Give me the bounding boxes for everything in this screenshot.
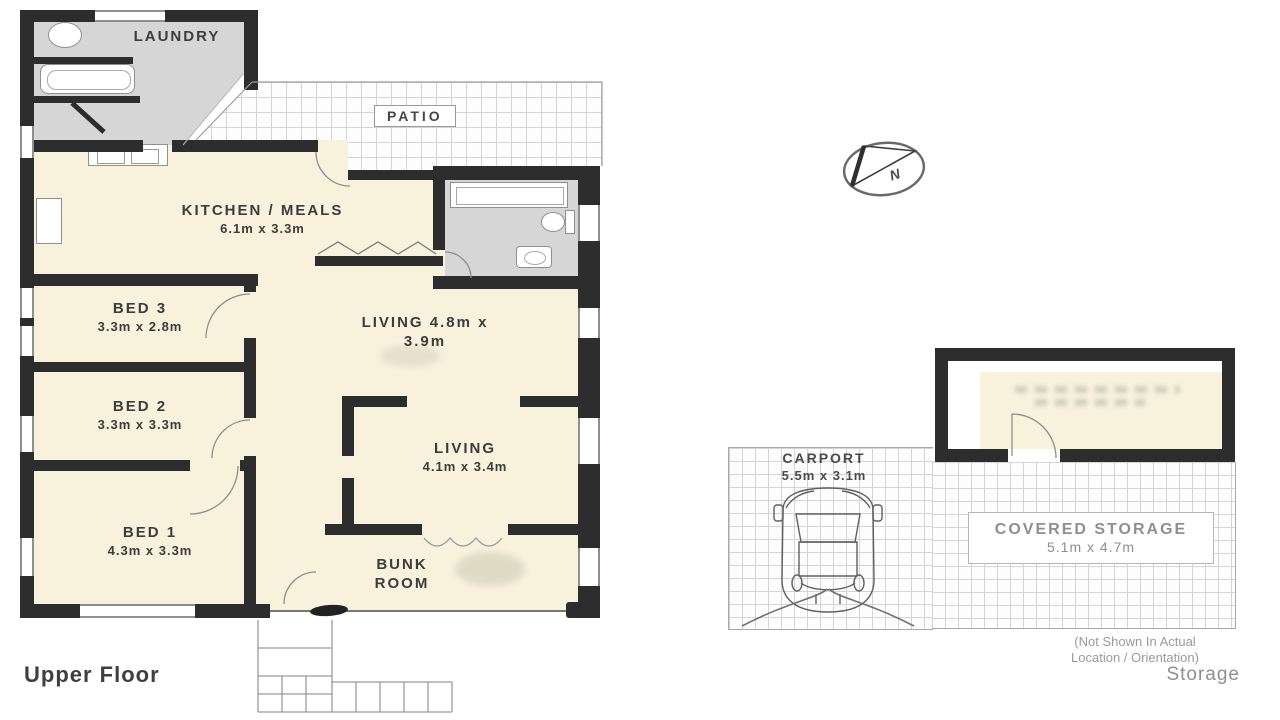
wall-bed3-bed2 xyxy=(20,362,256,372)
wall-laundry-right xyxy=(244,10,258,90)
stairs xyxy=(258,620,452,712)
pencil-smudge xyxy=(455,552,525,586)
bed2-name: BED 2 xyxy=(40,398,240,417)
window xyxy=(20,288,34,318)
bed1-dims: 4.3m x 3.3m xyxy=(45,543,255,559)
carport-label: CARPORT 5.5m x 3.1m xyxy=(748,450,900,484)
bed3-name: BED 3 xyxy=(40,300,240,319)
bunk-line2: ROOM xyxy=(352,575,452,594)
wall-bed2-bed1 xyxy=(20,460,190,471)
storage-title: Storage xyxy=(1100,664,1240,686)
window xyxy=(20,326,34,356)
compass-n-label: N xyxy=(888,165,903,184)
laundry-label: LAUNDRY xyxy=(112,28,242,47)
window xyxy=(20,416,34,452)
kitchen-label: KITCHEN / MEALS 6.1m x 3.3m xyxy=(150,202,375,237)
wall-bed2-bed1 xyxy=(240,460,256,471)
storage-room-floor xyxy=(980,372,1222,449)
living-lower-dims: 4.1m x 3.4m xyxy=(370,459,560,475)
window xyxy=(20,538,34,576)
wall-bath-top xyxy=(433,166,600,180)
carport-name: CARPORT xyxy=(748,450,900,468)
wall-kitchen-bottom xyxy=(315,256,443,266)
kitchen-dims: 6.1m x 3.3m xyxy=(150,221,375,237)
wall-bottom xyxy=(195,604,270,618)
window xyxy=(95,10,165,22)
covered-storage-dims: 5.1m x 4.7m xyxy=(969,539,1213,555)
compass-icon: N xyxy=(842,139,927,199)
carport-dims: 5.5m x 3.1m xyxy=(748,468,900,484)
living-lower-name: LIVING xyxy=(370,440,560,459)
faded-text-smudge xyxy=(1015,386,1180,393)
bed3-dims: 3.3m x 2.8m xyxy=(40,319,240,335)
bunk-room-label: BUNK ROOM xyxy=(352,556,452,594)
storage-door-gap xyxy=(1008,449,1060,462)
wall-bed3-top xyxy=(20,274,258,286)
wall-living-partition xyxy=(345,396,407,407)
window xyxy=(20,126,34,158)
window xyxy=(578,308,600,338)
wall-bunk-top xyxy=(325,524,422,535)
wall-laundry-inner xyxy=(33,96,140,103)
sink-inner xyxy=(524,251,546,265)
laundry-name: LAUNDRY xyxy=(112,28,242,47)
storage-building-walls xyxy=(935,348,1235,462)
bunk-line1: BUNK xyxy=(352,556,452,575)
fridge xyxy=(36,198,62,244)
covered-storage-label-box: COVERED STORAGE 5.1m x 4.7m xyxy=(968,512,1214,564)
window xyxy=(80,604,195,618)
sink-main xyxy=(516,246,552,268)
storage-note-line1: (Not Shown In Actual xyxy=(1010,634,1260,650)
bed2-dims: 3.3m x 3.3m xyxy=(40,417,240,433)
wall-laundry-inner xyxy=(33,57,133,64)
kitchen-name: KITCHEN / MEALS xyxy=(150,202,375,221)
covered-storage-name: COVERED STORAGE xyxy=(969,521,1213,539)
wall-bath-left xyxy=(433,166,445,250)
window xyxy=(578,418,600,464)
wall-kitchen-top xyxy=(33,140,143,152)
storage-note-line2: Location / Orientation) xyxy=(1010,650,1260,666)
wall-hall xyxy=(244,338,256,418)
wall-bottom xyxy=(20,604,80,618)
patio-name: PATIO xyxy=(387,108,443,124)
bed1-label: BED 1 4.3m x 3.3m xyxy=(45,524,255,559)
bed1-name: BED 1 xyxy=(45,524,255,543)
wall-bunk-top xyxy=(508,524,578,535)
bed2-label: BED 2 3.3m x 3.3m xyxy=(40,398,240,433)
window xyxy=(578,548,600,586)
wall-living-partition xyxy=(342,478,354,528)
living-lower-label: LIVING 4.1m x 3.4m xyxy=(370,440,560,475)
window xyxy=(578,205,600,241)
living-upper-line1: LIVING 4.8m x xyxy=(330,314,520,333)
bathtub-laundry xyxy=(40,64,135,94)
wall-living-partition xyxy=(342,396,354,456)
storage-note: (Not Shown In Actual Location / Orientat… xyxy=(1010,634,1260,665)
toilet-main xyxy=(541,212,565,232)
bathtub-inner xyxy=(456,187,564,205)
faded-text-smudge xyxy=(1035,399,1145,406)
bathtub-inner xyxy=(47,70,131,90)
toilet-tank xyxy=(565,210,575,234)
wall-living-top xyxy=(433,276,600,289)
toilet-laundry xyxy=(48,22,82,48)
floor-title: Upper Floor xyxy=(24,662,160,688)
bathtub-main xyxy=(450,182,568,208)
patio-label: PATIO xyxy=(374,105,456,127)
wall-hall xyxy=(244,274,256,292)
wall-bottom-corner xyxy=(566,602,600,618)
wall-kitchen-patio xyxy=(348,170,445,180)
floor-plan-canvas: LAUNDRY PATIO KITCHEN / MEALS 6.1m x 3.3… xyxy=(0,0,1280,720)
wall-kitchen-top xyxy=(172,140,318,152)
living-upper-label: LIVING 4.8m x 3.9m xyxy=(330,314,520,352)
bed3-label: BED 3 3.3m x 2.8m xyxy=(40,300,240,335)
living-upper-line2: 3.9m xyxy=(330,333,520,352)
